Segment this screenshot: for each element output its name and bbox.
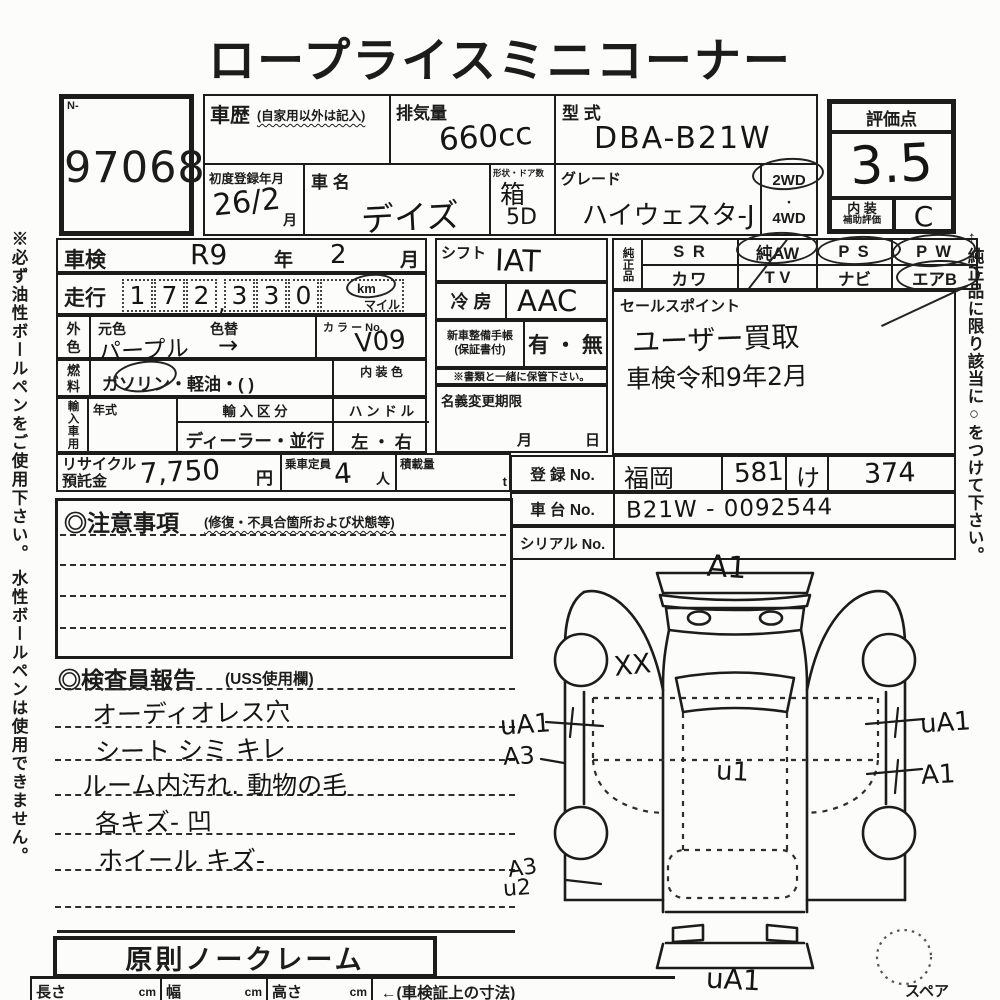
- import-year-label: 年式: [93, 401, 117, 418]
- car-name-label: 車 名: [311, 168, 350, 193]
- shift-cell: シフト IAT: [435, 238, 608, 282]
- model-code-cell: 型 式 DBA-B21W: [554, 94, 818, 165]
- car-name-value: デイズ: [360, 188, 460, 241]
- shaken-month-label: 月: [400, 245, 419, 272]
- damage-code-right-mid: A1: [920, 759, 956, 791]
- registration-row: 登 録 No. 福岡 581 け 374: [510, 455, 956, 492]
- mileage-digit: 0: [296, 281, 312, 310]
- auction-sheet: ロープライスミニコーナー N- 97068 車歴 (自家用以外は記入) 排気量 …: [0, 0, 1000, 1000]
- first-registration-cell: 初度登録年月 26/2 月: [203, 163, 305, 236]
- inspector-note-line: 各キズ- 凹: [95, 802, 213, 840]
- writing-line: [60, 595, 506, 597]
- first-registration-unit: 月: [283, 210, 297, 230]
- chassis-label: 車 台 No.: [530, 498, 595, 520]
- no-claim-box: 原則ノークレーム: [53, 936, 437, 978]
- dimensions-note: ←(車検証上の寸法): [381, 981, 515, 1000]
- import-label: 輸入車用: [65, 400, 81, 450]
- length-label: 長さ: [36, 981, 66, 1000]
- caution-box: ◎注意事項 (修復・不具合箇所および状態等): [55, 498, 513, 659]
- writing-line: [55, 688, 515, 690]
- color-change-value: →: [218, 331, 238, 359]
- drive-4wd: 4WD: [762, 210, 816, 227]
- capacity-label: 乗車定員: [285, 456, 331, 472]
- writing-line: [55, 906, 515, 908]
- ac-cell: 冷 房 AAC: [435, 282, 608, 320]
- writing-line: [60, 534, 506, 536]
- handle-label: ハ ン ド ル: [334, 399, 429, 423]
- service-book-options: 有 ・ 無: [528, 329, 603, 359]
- sales-point-line2: 車検令和9年2月: [626, 356, 808, 395]
- recycle-row: リサイクル 預託金 7,750 円 乗車定員 4 人 積載量 t: [56, 453, 511, 492]
- damage-code-right-upper: uA1: [919, 706, 972, 739]
- import-row: 輸入車用 年式 輸 入 区 分 ディーラー・並行 ハ ン ド ル 左 ・ 右: [56, 397, 427, 453]
- ac-label: 冷 房: [450, 288, 491, 314]
- ac-value: AAC: [517, 284, 577, 318]
- color-label: 色: [58, 338, 89, 356]
- capacity-unit: 人: [376, 469, 390, 489]
- lot-number-box: N- 97068: [59, 94, 194, 236]
- inspector-report-note: (USS使用欄): [225, 667, 314, 689]
- fuel-row: 燃 料 ガソリン・軽油・( ) 内 装 色: [56, 359, 427, 397]
- history-label: 車歴: [210, 99, 250, 128]
- no-claim-label: 原則ノークレーム: [125, 938, 364, 977]
- grade-cell: グレード ハイウェスタ-J: [554, 163, 762, 236]
- shaken-year-label: 年: [274, 245, 293, 272]
- inspector-note-line: ルーム内汚れ. 動物の毛: [82, 766, 347, 802]
- mileage-digit: 1: [130, 281, 146, 310]
- service-book-cell: 新車整備手帳 (保証書付) 有 ・ 無: [435, 320, 608, 368]
- sales-point-label: セールスポイント: [620, 295, 740, 316]
- damage-code-xx: XX: [612, 648, 652, 683]
- writing-line: [60, 564, 506, 566]
- shape-doors-cell: 形状・ドア数 箱 5D: [489, 163, 556, 236]
- genuine-kawa: カワ: [643, 266, 739, 290]
- grade-label: グレード: [561, 168, 621, 189]
- handle-options: 左 ・ 右: [334, 423, 429, 453]
- genuine-parts-label: 純正品: [620, 247, 636, 282]
- color-row: 外 色 元色 パープル 色替 → カ ラ ー No. V09: [56, 315, 427, 359]
- registration-class: 581: [733, 457, 784, 490]
- mileage-digit: 3: [232, 281, 248, 310]
- drive-dot: ・: [762, 194, 816, 209]
- inspector-note-line: オーディオレス穴: [92, 692, 291, 731]
- score-value: 3.5: [849, 133, 935, 197]
- damage-code-rear: uA1: [705, 962, 761, 998]
- recycle-unit: 円: [256, 464, 273, 489]
- caution-label: ◎注意事項: [64, 504, 179, 538]
- displacement-value: 660cc: [438, 116, 534, 158]
- damage-code-left-lower2: u2: [502, 875, 532, 902]
- damage-code-left-mid: A3: [502, 741, 535, 771]
- width-label: 幅: [166, 981, 181, 1000]
- fuel-label: 料: [58, 379, 89, 395]
- recycle-label: 預託金: [62, 474, 136, 491]
- capacity-value: 4: [333, 456, 353, 490]
- mileage-digit: 3: [264, 281, 280, 310]
- score-box: 評価点 3.5 内 装 補助評価 C: [827, 99, 956, 234]
- recycle-deposit-value: 7,750: [139, 453, 221, 490]
- mileage-unit-mile: マイル: [364, 296, 400, 313]
- displacement-cell: 排気量 660cc: [389, 94, 556, 165]
- inspector-note-line: シート シミ キレ: [95, 729, 287, 768]
- height-label: 高さ: [272, 981, 302, 1000]
- model-code-value: DBA-B21W: [594, 121, 772, 156]
- interior-score-label1: 内 装: [832, 202, 892, 216]
- spare-tire-circle: [877, 930, 931, 984]
- registration-number: 374: [863, 457, 916, 490]
- sales-point-line1: ユーザー買取: [631, 315, 800, 361]
- inspector-note-line: ホイール キズ-: [98, 841, 265, 877]
- color-no-value: V09: [354, 325, 407, 359]
- registration-kana: け: [796, 458, 820, 493]
- first-registration-value: 26/2: [211, 182, 282, 224]
- chassis-row: 車 台 No. B21W - 0092544: [510, 492, 956, 526]
- service-book-label: 新車整備手帳: [447, 330, 513, 344]
- history-cell: 車歴 (自家用以外は記入): [203, 94, 391, 165]
- import-division-options: ディーラー・並行: [178, 423, 332, 453]
- mileage-label: 走行: [64, 282, 106, 312]
- book-note: ※書類と一緒に保管下さい。: [453, 369, 590, 384]
- sales-point-box: セールスポイント ユーザー買取 車検令和9年2月: [612, 290, 956, 455]
- recycle-label: リサイクル: [62, 457, 136, 474]
- genuine-sr: S R: [643, 240, 739, 264]
- mileage-digit: 7: [162, 281, 178, 310]
- chassis-value: B21W - 0092544: [626, 494, 834, 524]
- import-division-label: 輸 入 区 分: [178, 399, 332, 423]
- height-unit: cm: [350, 985, 367, 999]
- width-unit: cm: [245, 985, 262, 999]
- shaken-era-value: R9: [190, 238, 227, 271]
- registration-area: 福岡: [624, 459, 674, 495]
- doors-value: 5D: [506, 205, 537, 230]
- spare-label: スペア: [905, 980, 949, 1000]
- color-label: 外: [58, 320, 89, 338]
- transfer-deadline-label: 名義変更期限: [441, 390, 522, 410]
- book-note-cell: ※書類と一緒に保管下さい。: [435, 368, 608, 385]
- interior-score-value: C: [914, 200, 934, 233]
- shaken-row: 車検 R9 年 2 月: [56, 238, 427, 273]
- caution-note: (修復・不具合箇所および状態等): [204, 512, 395, 531]
- transfer-day-label: 日: [585, 429, 600, 450]
- load-label: 積載量: [400, 456, 435, 472]
- interior-color-label: 内 装 色: [334, 361, 429, 380]
- length-unit: cm: [139, 985, 156, 999]
- lot-prefix: N-: [67, 100, 79, 112]
- damage-code-front: A1: [706, 549, 748, 587]
- transfer-month-label: 月: [517, 429, 532, 450]
- shift-label: シフト: [441, 242, 486, 263]
- mileage-digit: 2: [194, 281, 210, 310]
- genuine-navi: ナビ: [818, 266, 893, 290]
- transfer-deadline-cell: 名義変更期限 月 日: [435, 385, 608, 453]
- history-note: (自家用以外は記入): [257, 105, 365, 124]
- registration-label: 登 録 No.: [530, 463, 595, 485]
- writing-line: [60, 627, 506, 629]
- damage-code-left-upper: uA1: [499, 708, 552, 741]
- service-book-label2: (保証書付): [454, 344, 505, 358]
- left-margin-note: ※必ず油性ボールペンをご使用下さい。 水性ボールペンは使用できません。: [6, 230, 30, 800]
- interior-score-label2: 補助評価: [832, 216, 892, 226]
- displacement-label: 排気量: [396, 99, 447, 124]
- page-title: ロープライスミニコーナー: [140, 22, 860, 91]
- load-unit: t: [503, 474, 507, 489]
- grade-value: ハイウェスタ-J: [582, 195, 755, 232]
- right-margin-note: ←純正品に限り該当に○をつけて下さい。: [962, 230, 986, 610]
- fuel-label: 燃: [58, 363, 89, 379]
- car-name-cell: 車 名 デイズ: [303, 163, 491, 236]
- divider: [57, 930, 515, 933]
- shift-value: IAT: [494, 243, 541, 280]
- shaken-label: 車検: [64, 244, 106, 274]
- lot-number: 97068: [64, 143, 189, 193]
- shaken-month-value: 2: [330, 240, 347, 270]
- score-label: 評価点: [866, 105, 917, 130]
- damage-code-roof: u1: [715, 756, 750, 788]
